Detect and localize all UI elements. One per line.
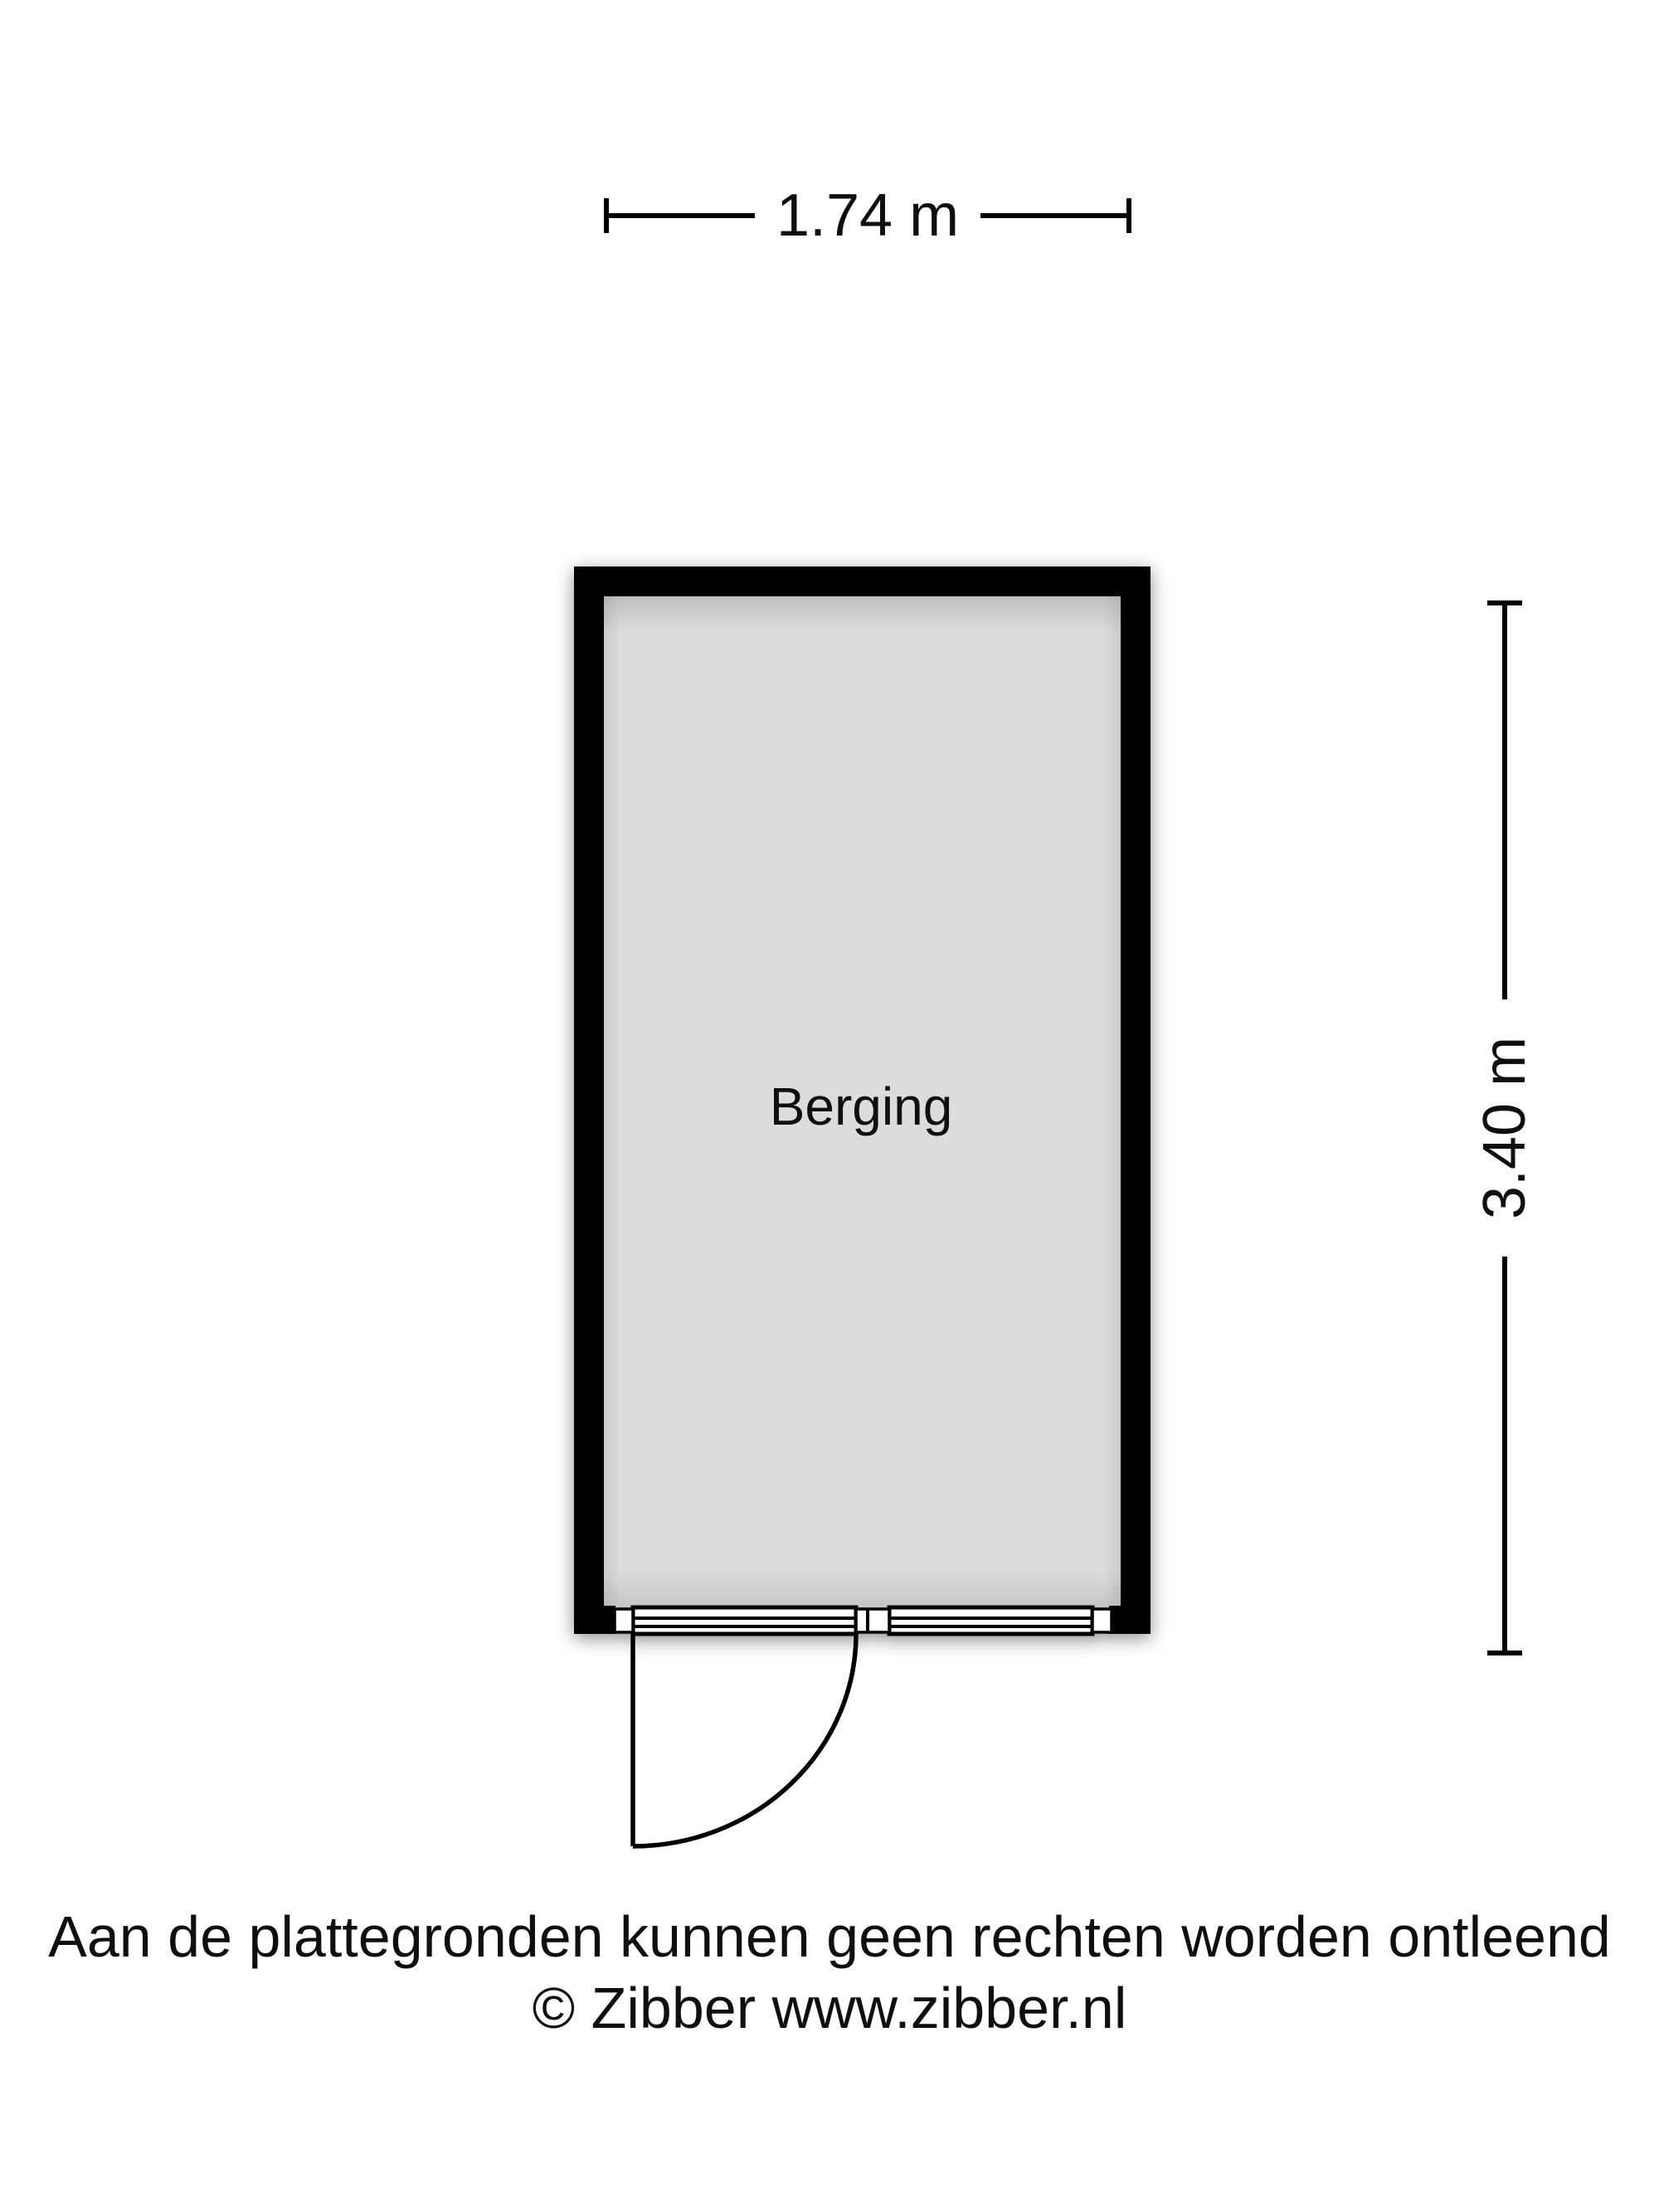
wall-corner-bottom-left (574, 1606, 615, 1634)
door-jamb-right (1092, 1609, 1112, 1632)
door-jamb-left (615, 1609, 633, 1632)
dimension-height-label: 3.40 m (1471, 1037, 1539, 1219)
floor-shading-top (604, 596, 1121, 634)
window-panel-right (889, 1607, 1092, 1634)
dimension-width-line-left (609, 213, 755, 218)
dimension-width-line-right (980, 213, 1126, 218)
dimension-width-label: 1.74 m (755, 184, 980, 247)
dimension-height: 3.40 m (1475, 600, 1535, 1655)
dimension-width-tick-right (1126, 198, 1131, 233)
floor-shading-bottom (604, 1570, 1121, 1607)
door-post-center (856, 1609, 889, 1632)
room-name-label: Berging (654, 1075, 1068, 1138)
dimension-height-line-bottom (1502, 1257, 1507, 1650)
wall-corner-bottom-right (1109, 1606, 1151, 1634)
wall-right (1121, 566, 1151, 1634)
dimension-height-line-top (1502, 605, 1507, 999)
footer-copyright: © Zibber www.zibber.nl (0, 1972, 1659, 2044)
window-panel-left (633, 1607, 856, 1634)
dimension-height-tick-bottom (1487, 1650, 1522, 1655)
floor-shading-right (1104, 596, 1121, 1607)
floor-shading-left (604, 596, 620, 1607)
wall-top (574, 566, 1151, 596)
footer: Aan de plattegronden kunnen geen rechten… (0, 1901, 1659, 2044)
wall-left (574, 566, 604, 1634)
dimension-height-label-wrap: 3.40 m (1475, 999, 1535, 1257)
dimension-width: 1.74 m (604, 184, 1131, 247)
footer-disclaimer: Aan de plattegronden kunnen geen rechten… (0, 1901, 1659, 1972)
floorplan-page: 1.74 m 3.40 m Berging Aan de plattegrond… (0, 0, 1659, 2212)
door-swing-arc (633, 1634, 856, 1846)
